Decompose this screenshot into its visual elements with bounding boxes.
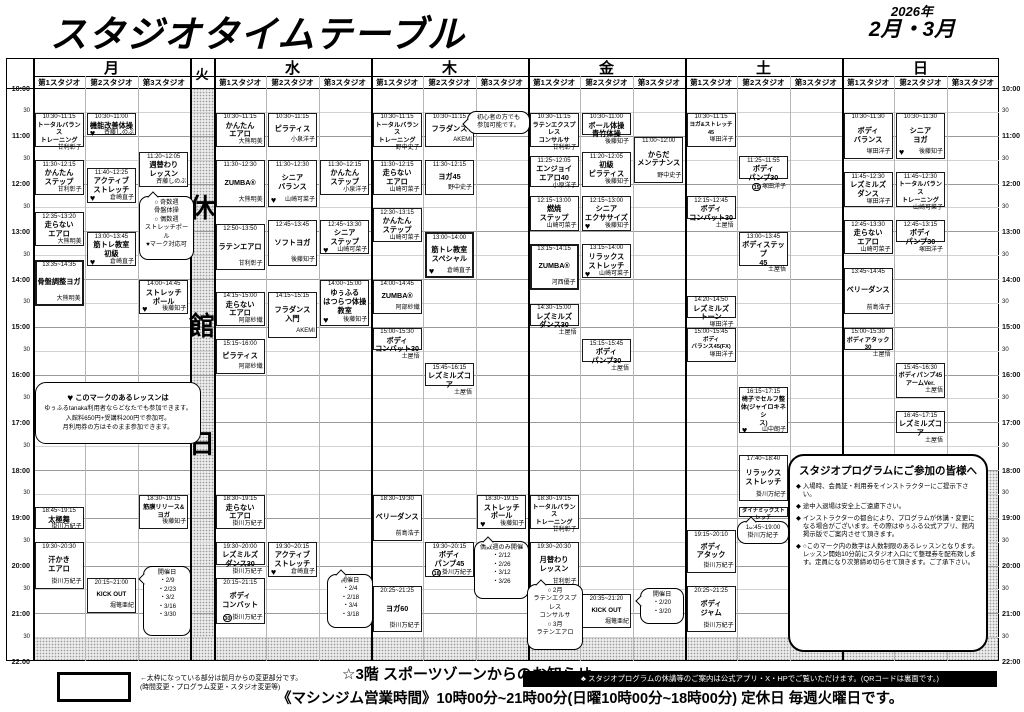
- bold-frame-legend-box: [57, 672, 131, 702]
- studio-header: 第2スタジオ: [580, 76, 632, 88]
- class-instructor: 甘利彰子: [58, 187, 82, 195]
- class-name: レズミルズ ダンス30: [217, 551, 264, 569]
- diamond-bullet-icon: ◆: [796, 503, 801, 511]
- class-name: レズミルズコア: [426, 372, 473, 390]
- class-footer: 30掛川万紀子: [217, 614, 264, 624]
- class-name: 燃焼 ステップ: [531, 205, 578, 223]
- class-instructor: 掛川万紀子: [52, 579, 82, 587]
- class-instructor: 小泉洋子: [343, 187, 367, 195]
- class-name: ベリーダンス: [374, 504, 421, 532]
- day-header-木: 木: [371, 58, 528, 76]
- class-footer: 山崎可菜子: [374, 187, 421, 196]
- class-name: トータルバランス トレーニング: [36, 122, 83, 145]
- class-block: 11:45~12:30トータルバランス トレーニング山崎可菜子: [896, 172, 945, 206]
- class-footer: 後藤知子: [583, 179, 630, 188]
- class-footer: ♥倉崎直子: [427, 268, 472, 277]
- capacity-badge: 18: [432, 569, 441, 578]
- heart-icon: ♥: [429, 268, 434, 276]
- class-instructor: 小泉洋子: [291, 137, 315, 145]
- class-block: 12:50~13:50ラテンエアロ甘利彰子: [216, 224, 265, 270]
- class-footer: 小原洋子: [531, 183, 578, 192]
- studio-header: 第2スタジオ: [423, 76, 475, 88]
- notice-bullet-text: インストラクターの都合により、プログラムが休講・変更になる場合がございます。その…: [803, 515, 980, 539]
- time-label-right: 30: [1002, 394, 1024, 403]
- class-instructor: 後藤知子: [162, 519, 186, 527]
- class-time: 20:35~21:20: [583, 596, 630, 604]
- class-name: KICK OUT: [88, 587, 135, 603]
- institution-icon: ♣: [581, 674, 588, 683]
- time-label-left: 16:00: [2, 370, 30, 379]
- class-name: ボディ ジャム: [688, 595, 735, 623]
- class-name: レズミルズ ダンス: [845, 181, 892, 199]
- diamond-bullet-icon: ◆: [796, 543, 801, 567]
- class-footer: 掛川万紀子: [688, 563, 735, 572]
- class-time: 10:30~11:15: [374, 114, 421, 122]
- heart-icon: ♥: [323, 247, 328, 255]
- class-block: 16:45~17:15レズミルズコア土屋悟: [896, 411, 945, 433]
- class-name: ピラティス: [269, 122, 316, 138]
- class-time: 19:30~20:30: [36, 544, 83, 552]
- class-block: 19:30~20:30汗かき エアロ掛川万紀子: [35, 542, 84, 588]
- class-name: 走らない エアロ: [374, 169, 421, 187]
- callout-thu-pole-dates: 偶数週のみ開催 ・2/12 ・2/26 ・3/12 ・3/26: [474, 541, 529, 599]
- class-name: 走らない エアロ: [217, 301, 264, 319]
- class-name: 月替わり レッスン: [531, 551, 578, 579]
- class-footer: ♥倉崎直子: [88, 195, 135, 204]
- class-name: 走らない エアロ: [36, 221, 83, 239]
- class-footer: 掛川万紀子: [374, 623, 421, 632]
- class-block: 14:15~15:15フラダンス 入門AKEMI: [268, 292, 317, 338]
- class-instructor: 土屋悟: [611, 366, 629, 374]
- capacity-badge: 15: [752, 183, 761, 192]
- class-instructor: 野中史子: [657, 173, 681, 181]
- class-instructor: 斉藤しのぶ: [104, 130, 134, 138]
- class-footer: 15塚田洋子: [740, 183, 787, 193]
- class-footer: 掛川万紀子: [740, 492, 787, 501]
- class-block: 12:15~12:45ボディ コンバット30土屋悟: [687, 196, 736, 218]
- class-block: 18:30~19:15走らない エアロ掛川万紀子: [216, 495, 265, 529]
- class-block: 10:30~11:15ピラティス小泉洋子: [268, 113, 317, 147]
- class-block: 11:30~12:15かんたん ステップ甘利彰子: [35, 160, 84, 194]
- time-label-right: 30: [1002, 633, 1024, 642]
- class-footer: 塚田洋子: [897, 247, 944, 256]
- class-block: 14:00~14:45ストレッチ ポール♥後藤知子: [139, 280, 188, 314]
- callout-tail: [482, 536, 493, 547]
- class-name: ソフトヨガ: [269, 229, 316, 257]
- notice-bullet-text: 入場時、会員証・利用券をインストラクターにご提示下さい。: [803, 483, 980, 499]
- class-instructor: 倉崎直子: [110, 195, 134, 203]
- class-instructor: 河西優子: [552, 280, 576, 288]
- class-footer: AKEMI: [426, 137, 473, 146]
- class-instructor: 倉崎直子: [110, 259, 134, 267]
- class-name: 汗かき エアロ: [36, 551, 83, 579]
- heart-icon: ♥: [742, 427, 747, 435]
- heart-icon: ♥: [899, 149, 904, 157]
- class-name: からだ メンテナンス: [635, 146, 682, 174]
- class-name: かんたん エアロ: [217, 122, 264, 140]
- studio-header: 第2スタジオ: [894, 76, 946, 88]
- class-instructor: 堀篭亜紀: [605, 619, 629, 627]
- class-time: 13:35~14:35: [37, 262, 82, 270]
- callout-tail: [138, 573, 149, 584]
- class-block: 12:30~13:15かんたん ステップ山崎可菜子: [373, 208, 422, 242]
- class-footer: 斉藤しのぶ: [140, 179, 187, 188]
- day-header-火: 火: [190, 58, 214, 88]
- class-footer: 大熊明美: [37, 296, 82, 305]
- class-name: ピラティス: [217, 348, 264, 364]
- time-label-left: 30: [2, 107, 30, 116]
- class-instructor: 掛川万紀子: [233, 615, 263, 623]
- class-time: 18:30~19:15: [531, 496, 578, 504]
- time-label-left: 30: [2, 346, 30, 355]
- time-label-right: 20:00: [1002, 561, 1024, 570]
- class-footer: 甘利彰子: [531, 527, 578, 536]
- time-label-right: 30: [1002, 489, 1024, 498]
- class-instructor: 掛川万紀子: [704, 563, 734, 571]
- class-instructor: 山崎可菜子: [599, 271, 629, 279]
- heart-note-line: ♥このマークのあるレッスンは: [38, 393, 198, 404]
- time-label-left: 30: [2, 633, 30, 642]
- capacity-badge: 30: [223, 614, 232, 623]
- class-footer: 阿部紗織: [374, 305, 421, 314]
- class-block: 14:00~15:00ゆぅふる はつらつ体操 教室♥後藤知子: [320, 280, 369, 326]
- class-time: 13:45~14:45: [845, 269, 892, 277]
- class-block: 13:35~14:35骨盤調整ヨガ大熊明美: [35, 260, 84, 306]
- class-instructor: 大熊明美: [57, 296, 81, 304]
- class-footer: 大熊明美: [217, 139, 264, 148]
- class-instructor: AKEMI: [453, 137, 472, 145]
- heart-icon: ♥: [90, 195, 95, 203]
- class-name: KICK OUT: [583, 603, 630, 619]
- time-label-left: 30: [2, 203, 30, 212]
- time-label-right: 10:00: [1002, 84, 1024, 93]
- class-name: レズミルズ トーン: [688, 305, 735, 323]
- day-header-月: 月: [33, 58, 190, 76]
- class-instructor: 掛川万紀子: [704, 623, 734, 631]
- class-instructor: 山中朗子: [762, 427, 786, 435]
- class-time: 20:15~21:00: [88, 580, 135, 588]
- class-name: トータルバランス トレーニング: [897, 181, 944, 204]
- class-time: 11:00~12:00: [635, 138, 682, 146]
- class-name: エンジョイ エアロ40: [531, 165, 578, 183]
- class-footer: 掛川万紀子: [688, 623, 735, 632]
- heart-icon: ♥: [585, 223, 590, 231]
- callout-thu-hula-note: 初心者の方でも 参加可能です。: [467, 111, 530, 134]
- time-label-left: 15:00: [2, 322, 30, 331]
- class-block: 12:35~13:20走らない エアロ大熊明美: [35, 212, 84, 246]
- class-time: 10:30~11:15: [36, 114, 83, 122]
- class-footer: 野中史子: [635, 173, 682, 182]
- day-separator-line: [371, 58, 373, 661]
- class-time: 11:30~12:30: [217, 162, 264, 170]
- class-time: 13:00~14:00: [427, 235, 472, 243]
- class-footer: 甘利彰子: [217, 261, 264, 270]
- class-name: ZUMBA®: [374, 289, 421, 305]
- callout-wed-active-dates: 開催日 ・2/4 ・2/18 ・3/4 ・3/18: [327, 574, 373, 628]
- class-name: シニア ヨガ: [897, 122, 944, 150]
- class-name: レズミルズコア: [897, 420, 944, 438]
- class-footer: 掛川万紀子: [217, 521, 264, 530]
- class-footer: 小泉洋子: [321, 187, 368, 196]
- class-footer: 堀篭亜紀: [88, 603, 135, 612]
- heart-icon: ♥: [67, 393, 73, 404]
- class-instructor: 塚田洋子: [919, 247, 943, 255]
- class-block: 13:00~13:45筋トレ教室 初級♥倉崎直子: [87, 232, 136, 266]
- class-instructor: 倉崎直子: [447, 268, 471, 276]
- class-name: トータルバランス トレーニング: [531, 504, 578, 527]
- class-name: ベリーダンス: [845, 277, 892, 305]
- class-block: ダイナミックストレッチ: [739, 507, 788, 517]
- time-label-right: 11:00: [1002, 131, 1024, 140]
- class-block: 19:30~20:15アクティブ ストレッチ♥倉崎直子: [268, 542, 317, 576]
- class-instructor: 掛川万紀子: [390, 623, 420, 631]
- class-block: 12:45~13:30走らない エアロ山崎可菜子: [844, 220, 893, 254]
- class-block: 10:30~11:15トータルバランス トレーニング野中史子: [373, 113, 422, 147]
- heart-note-line: ゆぅふるtanaka利用者ならどなたでも参加できます。: [38, 404, 198, 414]
- notice-bullet: ◆入場時、会員証・利用券をインストラクターにご提示下さい。: [796, 483, 980, 499]
- class-footer: ♥後藤知子: [897, 149, 944, 158]
- class-footer: ♥山中朗子: [740, 427, 787, 436]
- class-instructor: 山崎可菜子: [337, 247, 367, 255]
- time-label-left: 22:00: [2, 657, 30, 666]
- heart-note-line: 月利用券の方はそのまま参加できます。: [38, 423, 198, 433]
- class-name: ボール体操 青竹体操: [583, 122, 630, 140]
- class-block: 11:25~11:55ボディ パンプ3015塚田洋子: [739, 156, 788, 178]
- class-footer: 前島浩子: [845, 305, 892, 314]
- time-label-left: 10:00: [2, 84, 30, 93]
- class-block: 12:15~13:00燃焼 ステップ山崎可菜子: [530, 196, 579, 230]
- class-instructor: 掛川万紀子: [756, 492, 786, 500]
- heart-icon: ♥: [271, 197, 276, 205]
- class-name: ボディ パンプ30: [583, 348, 630, 366]
- class-footer: 阿部紗織: [217, 318, 264, 327]
- time-label-left: 30: [2, 537, 30, 546]
- class-time: 15:00~15:45: [688, 329, 735, 337]
- studio-header: 第1スタジオ: [685, 76, 737, 88]
- callout-fri-monthly-lesson: ○ 2月 ラテンエクスプレス コンサルサ ○ 3月 ラテンエアロ: [527, 584, 583, 650]
- time-label-right: 30: [1002, 442, 1024, 451]
- class-block: 15:45~16:30ボディパンプ45 アームVer.土屋悟: [896, 363, 945, 397]
- class-block: 19:30~20:15ボディ パンプ4518掛川万紀子: [425, 542, 474, 576]
- class-block: 11:30~12:15走らない エアロ山崎可菜子: [373, 160, 422, 194]
- class-footer: 塚田洋子: [845, 199, 892, 208]
- class-instructor: 大熊明美: [239, 197, 263, 205]
- time-label-left: 30: [2, 298, 30, 307]
- class-instructor: 塚田洋子: [762, 184, 786, 192]
- studio-header: 第1スタジオ: [33, 76, 85, 88]
- class-block: 15:00~15:45ボディ バランス45(FX)塚田洋子: [687, 328, 736, 362]
- class-instructor: 後藤知子: [919, 149, 943, 157]
- class-footer: 土屋悟: [845, 352, 892, 361]
- class-instructor: 土屋悟: [559, 330, 577, 338]
- diamond-bullet-icon: ◆: [796, 515, 801, 539]
- class-time: 11:30~12:15: [426, 162, 473, 170]
- class-instructor: 山崎可菜子: [861, 247, 891, 255]
- studio-header: 第3スタジオ: [947, 76, 999, 88]
- studio-header: 第3スタジオ: [138, 76, 190, 88]
- class-block: 11:00~12:00からだ メンテナンス野中史子: [634, 137, 683, 183]
- class-instructor: 前島浩子: [396, 531, 420, 539]
- class-footer: 山崎可菜子: [531, 223, 578, 232]
- participant-notice-title: スタジオプログラムにご参加の皆様へ: [796, 463, 980, 478]
- studio-header: 第3スタジオ: [319, 76, 371, 88]
- heart-icon: ♥: [585, 271, 590, 279]
- class-footer: 掛川万紀子: [217, 569, 264, 578]
- grid-line: [33, 375, 999, 376]
- class-footer: 土屋悟: [426, 390, 473, 399]
- heart-icon: ♥: [271, 569, 276, 577]
- class-name: ZUMBA®: [217, 169, 264, 197]
- class-block: 13:15~14:15ZUMBA®河西優子: [530, 244, 579, 290]
- class-instructor: 塚田洋子: [867, 199, 891, 207]
- class-footer: 土屋悟: [897, 438, 944, 447]
- class-block: 12:45~13:45ソフトヨガ後藤知子: [268, 220, 317, 266]
- time-label-left: 21:00: [2, 609, 30, 618]
- class-instructor: 後藤知子: [162, 306, 186, 314]
- class-block: 13:45~14:45ベリーダンス前島浩子: [844, 268, 893, 314]
- class-block: 13:00~14:00筋トレ教室 スペシャル♥倉崎直子: [425, 232, 474, 278]
- class-name: ボディ パンプ30: [897, 229, 944, 247]
- class-block: 10:30~11:30シニア ヨガ♥後藤知子: [896, 113, 945, 159]
- class-block: 11:30~12:30シニア バランス♥山崎可菜子: [268, 160, 317, 206]
- day-header-日: 日: [842, 58, 999, 76]
- callout-mon-kickout-dates: 開催日 ・2/9 ・2/23 ・3/2 ・3/16 ・3/30: [143, 566, 191, 636]
- class-name: フラダンス 入門: [269, 301, 316, 329]
- class-instructor: 土屋悟: [925, 388, 943, 396]
- class-time: 15:00~15:30: [845, 329, 892, 337]
- time-label-right: 30: [1002, 537, 1024, 546]
- class-instructor: 土屋悟: [925, 438, 943, 446]
- class-name: 椅子でセルフ整 体(ジャイロキネシ ス): [740, 396, 787, 427]
- class-instructor: 掛川万紀子: [442, 570, 472, 578]
- class-name: ヨガ&ストレッチ45: [688, 122, 735, 138]
- machine-gym-hours: 《マシンジム営業時間》10時00分~21時00分(日曜10時00分~18時00分…: [277, 687, 903, 708]
- class-footer: 掛川万紀子: [36, 579, 83, 588]
- class-footer: 土屋悟: [583, 366, 630, 375]
- class-instructor: 土屋悟: [454, 390, 472, 398]
- time-label-left: 30: [2, 251, 30, 260]
- class-name: 週替わり レッスン: [140, 161, 187, 179]
- time-label-left: 11:00: [2, 131, 30, 140]
- time-label-left: 14:00: [2, 275, 30, 284]
- class-footer: 大熊明美: [217, 197, 264, 206]
- class-name: ボディ アタック: [688, 539, 735, 563]
- class-time: 20:15~21:15: [217, 580, 264, 588]
- class-name: 筋トレ教室 初級: [88, 241, 135, 259]
- time-label-left: 30: [2, 489, 30, 498]
- time-label-right: 12:00: [1002, 179, 1024, 188]
- class-name: 筋トレ教室 スペシャル: [427, 242, 472, 268]
- class-name: 走らない エアロ: [217, 504, 264, 522]
- class-block: 20:15~21:15ボディ コンバット30掛川万紀子: [216, 578, 265, 624]
- class-block: 20:15~21:00KICK OUT堀篭亜紀: [87, 578, 136, 612]
- class-block: 11:20~12:05初級 ピラティス後藤知子: [582, 152, 631, 186]
- class-footer: 塚田洋子: [845, 149, 892, 158]
- studio-header: 第1スタジオ: [842, 76, 894, 88]
- studio-header: 第1スタジオ: [371, 76, 423, 88]
- day-header-水: 水: [214, 58, 371, 76]
- class-footer: 土屋悟: [531, 330, 578, 339]
- class-block: 14:20~14:50レズミルズ トーン塚田洋子: [687, 296, 736, 318]
- class-time: 20:25~21:25: [374, 588, 421, 596]
- class-block: 11:30~12:30ZUMBA®大熊明美: [216, 160, 265, 206]
- class-block: 20:25~21:25ヨガ60掛川万紀子: [373, 586, 422, 632]
- class-instructor: 野中史子: [396, 145, 420, 153]
- class-footer: 堀篭亜紀: [583, 619, 630, 628]
- class-instructor: 塚田洋子: [867, 149, 891, 157]
- class-block: 13:00~13:45ボディステップ 45土屋悟: [739, 232, 788, 266]
- class-name: ゆぅふる はつらつ体操 教室: [321, 289, 368, 317]
- class-name: 走らない エアロ: [845, 229, 892, 247]
- app-notice-bar: ♣ スタジオプログラムの休講等のご案内は公式アプリ・X・HPでご覧いただけます。…: [523, 671, 997, 687]
- class-footer: 大熊明美: [36, 239, 83, 248]
- class-name: レズミルズ ダンス30: [531, 313, 578, 331]
- class-footer: 山崎可菜子: [897, 205, 944, 214]
- heart-icon: ♥: [90, 259, 95, 267]
- class-time: 17:40~18:40: [740, 456, 787, 464]
- studio-header: 第3スタジオ: [790, 76, 842, 88]
- studio-header: 第2スタジオ: [737, 76, 789, 88]
- time-label-right: 30: [1002, 298, 1024, 307]
- callout-mon-weekly-lesson: ○ 奇数週 骨盤体操 ○ 偶数週 ストレッチポール ♥マーク対応可: [139, 196, 194, 260]
- callout-sat-dynamic-time: 18:45~19:00 掛川万紀子: [737, 521, 789, 544]
- time-label-left: 12:00: [2, 179, 30, 188]
- app-notice-text: スタジオプログラムの休講等のご案内は公式アプリ・X・HPでご覧いただけます。(Q…: [588, 674, 939, 683]
- class-time: 10:30~11:30: [897, 114, 944, 122]
- time-label-right: 16:00: [1002, 370, 1024, 379]
- class-instructor: 土屋悟: [768, 267, 786, 275]
- notice-bullet: ◆途中入退場は安全上ご遠慮下さい。: [796, 503, 980, 511]
- class-block: 13:15~14:00リラックス ストレッチ♥山崎可菜子: [582, 244, 631, 278]
- class-name: ボディ バランス45(FX): [688, 337, 735, 353]
- class-name: トータルバランス トレーニング: [374, 122, 421, 145]
- studio-header: 第3スタジオ: [476, 76, 528, 88]
- studio-timetable-page: スタジオタイムテーブル 2026年 2月・3月 月第1スタジオ第2スタジオ第3ス…: [0, 0, 1024, 712]
- notice-bullet: ◆インストラクターの都合により、プログラムが休講・変更になる場合がございます。そ…: [796, 515, 980, 539]
- class-name: ZUMBA®: [532, 254, 577, 280]
- class-block: 11:45~12:30レズミルズ ダンス塚田洋子: [844, 172, 893, 206]
- class-footer: ♥山崎可菜子: [321, 247, 368, 256]
- class-instructor: 斉藤しのぶ: [156, 179, 186, 187]
- class-name: ボディ コンバット30: [688, 205, 735, 223]
- class-time: 18:30~19:15: [140, 496, 187, 504]
- class-name: リラックス ストレッチ: [583, 253, 630, 271]
- time-label-right: 30: [1002, 251, 1024, 260]
- time-label-right: 14:00: [1002, 275, 1024, 284]
- callout-fri-kickout-dates: 開催日 ・2/20 ・3/20: [640, 588, 684, 624]
- class-footer: 甘利彰子: [36, 145, 83, 154]
- class-footer: 土屋悟: [740, 267, 787, 276]
- class-time: 18:30~19:30: [374, 496, 421, 504]
- class-instructor: 土屋悟: [716, 223, 734, 231]
- class-name: ラテンエクスプレス コンサルサ: [531, 122, 578, 145]
- class-footer: 掛川万紀子: [36, 524, 83, 533]
- class-block: 20:35~21:20KICK OUT堀篭亜紀: [582, 594, 631, 628]
- class-instructor: 後藤知子: [605, 223, 629, 231]
- class-block: 11:30~12:15ヨガ45野中史子: [425, 160, 474, 194]
- class-name: ヨガ60: [374, 595, 421, 623]
- participant-notice: スタジオプログラムにご参加の皆様へ ◆入場時、会員証・利用券をインストラクターに…: [788, 454, 988, 652]
- class-name: ラテンエアロ: [217, 233, 264, 261]
- class-instructor: 山崎可菜子: [390, 187, 420, 195]
- heart-icon: ♥: [323, 317, 328, 325]
- class-time: 14:00~14:45: [374, 281, 421, 289]
- class-block: 15:00~15:30ボディ コンバット30土屋悟: [373, 328, 422, 350]
- class-instructor: 野中史子: [448, 185, 472, 193]
- diamond-bullet-icon: ◆: [796, 483, 801, 499]
- class-name: 筋膜リリース&ヨガ: [140, 504, 187, 520]
- class-block: 19:30~20:00レズミルズ ダンス30掛川万紀子: [216, 542, 265, 564]
